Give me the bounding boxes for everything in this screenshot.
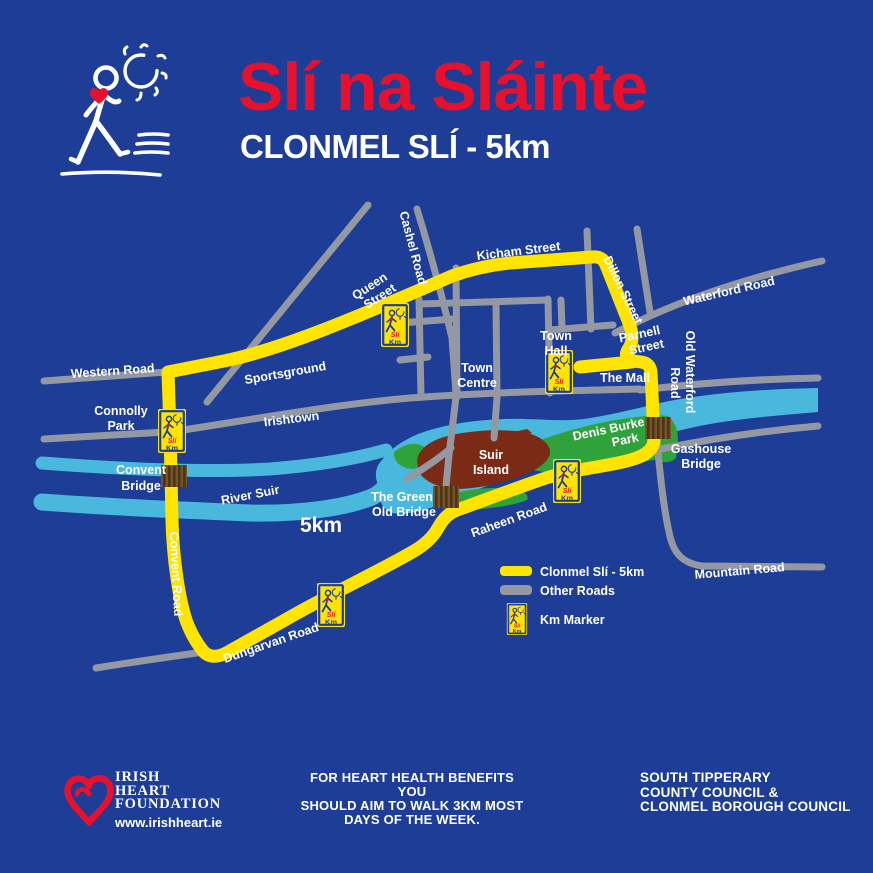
label-old-waterford-2: Road [668, 367, 682, 398]
ihf-name-line3: FOUNDATION [115, 798, 221, 812]
label-waterford-road: Waterford Road [682, 274, 776, 309]
legend-route-label: Clonmel Slí - 5km [540, 565, 644, 579]
heart-swirl [77, 790, 89, 795]
label-green-old-bridge-1: The Green [371, 490, 433, 504]
legend-route-swatch [500, 566, 532, 576]
ihf-website-url: www.irishheart.ie [115, 815, 222, 830]
health-message-line1: FOR HEART HEALTH BENEFITS YOU [298, 771, 526, 799]
council-credits: SOUTH TIPPERARY COUNTY COUNCIL & CLONMEL… [640, 771, 851, 815]
label-western-road: Western Road [70, 361, 155, 381]
label-town-centre-2: Centre [457, 376, 497, 390]
label-gashouse-2: Bridge [681, 457, 721, 471]
label-convent-road: Convent Road [167, 531, 185, 616]
label-green-old-bridge-2: Old Bridge [372, 505, 436, 519]
label-river-suir: River Suir [220, 483, 281, 508]
label-connolly-park-1: Connolly [94, 404, 148, 418]
ihf-name: IRISH HEART FOUNDATION [115, 771, 221, 812]
label-suir-island-1: Suir [479, 448, 503, 462]
label-irishtown: Irishtown [263, 409, 320, 430]
label-connolly-park-2: Park [107, 419, 134, 433]
km-marker-raheen-road [553, 459, 581, 503]
health-message: FOR HEART HEALTH BENEFITS YOU SHOULD AIM… [298, 771, 526, 827]
map-legend: Clonmel Slí - 5km Other Roads Km Marker [500, 565, 644, 635]
km-marker-dungarvan-road [317, 583, 345, 627]
old-bridge-marker [433, 486, 459, 508]
route-map: Slí Km [0, 0, 873, 873]
legend-km-marker-label: Km Marker [540, 613, 605, 627]
label-town-hall-1: Town [540, 329, 572, 343]
label-the-mall: The Mall [600, 371, 650, 385]
legend-other-roads-swatch [500, 585, 532, 595]
health-message-line3: DAYS OF THE WEEK. [298, 813, 526, 827]
council-line1: SOUTH TIPPERARY [640, 771, 851, 786]
km-marker-connolly-park [158, 409, 186, 453]
label-distance-5km: 5km [300, 514, 342, 537]
health-message-line2: SHOULD AIM TO WALK 3KM MOST [298, 799, 526, 813]
footer: IRISH HEART FOUNDATION www.irishheart.ie… [0, 755, 873, 873]
council-line2: COUNTY COUNCIL & [640, 786, 851, 801]
legend-km-marker-icon [507, 603, 527, 635]
label-convent-bridge-1: Convent [116, 463, 167, 477]
label-town-hall-2: Hall [545, 344, 568, 358]
km-marker-queen-street [381, 303, 409, 347]
label-town-centre-1: Town [461, 361, 493, 375]
label-old-waterford-1: Old Waterford [683, 331, 697, 414]
irish-heart-foundation-logo [60, 767, 118, 835]
label-cashel-road: Cashel Road [396, 210, 429, 287]
gashouse-bridge-marker [645, 417, 671, 439]
label-convent-bridge-2: Bridge [121, 479, 161, 493]
label-sportsground: Sportsground [243, 359, 327, 387]
legend-other-roads-label: Other Roads [540, 584, 615, 598]
heart-icon [68, 778, 111, 822]
poster: Slí na Sláinte CLONMEL SLÍ - 5km [0, 0, 873, 873]
label-suir-island-2: Island [473, 463, 509, 477]
label-gashouse-1: Gashouse [671, 442, 731, 456]
council-line3: CLONMEL BOROUGH COUNCIL [640, 800, 851, 815]
